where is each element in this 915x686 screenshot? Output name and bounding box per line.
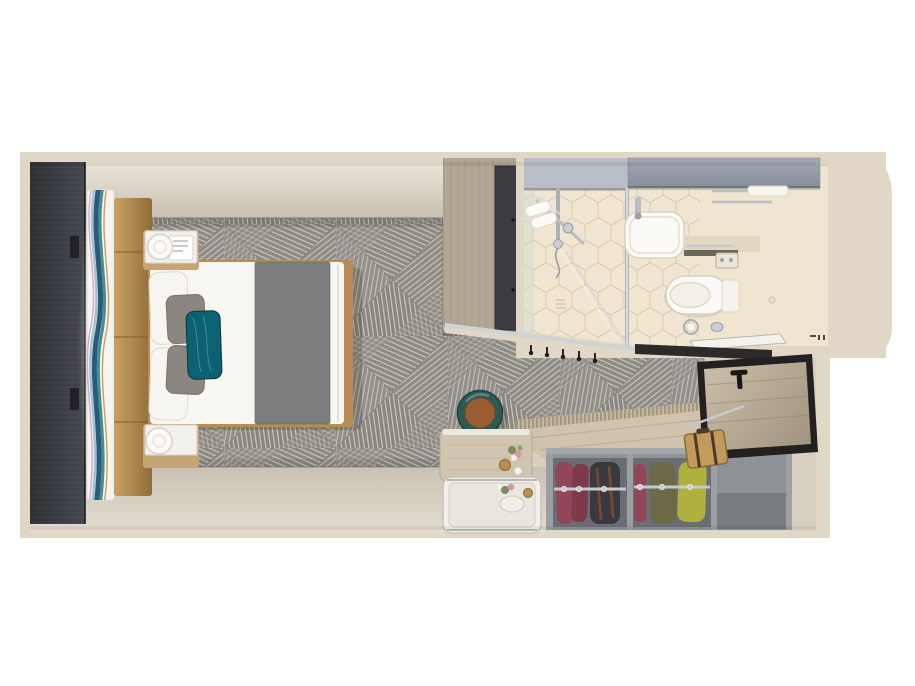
wall-shadow-top — [30, 162, 816, 166]
tall-cabinet — [443, 158, 523, 336]
wall-shadow-bottom — [30, 526, 816, 530]
bathroom — [516, 152, 886, 358]
cabinet-door — [495, 166, 518, 330]
nightstand-top — [143, 230, 199, 270]
panel-handle — [70, 388, 79, 410]
folded-towel — [748, 186, 788, 196]
carpet-shadow-top — [147, 218, 443, 227]
double-bed — [148, 260, 362, 430]
vanity-counter-ledge — [684, 236, 760, 252]
wave-artwork — [87, 185, 114, 505]
wall-outlet — [769, 297, 775, 303]
open-closet — [546, 448, 792, 530]
faucet — [635, 197, 641, 214]
table-lamp — [146, 428, 172, 454]
drain-cap — [711, 323, 723, 332]
dark-jacket — [590, 462, 620, 524]
nightstand-bottom — [143, 424, 199, 468]
hand-shower — [554, 240, 563, 249]
dark-wardrobe-panel — [30, 162, 85, 524]
plate — [500, 496, 524, 512]
shower-mixer — [563, 223, 573, 233]
gold-item — [524, 489, 533, 498]
olive-garment — [649, 462, 677, 525]
maroon-garments — [555, 462, 589, 525]
gray-bed-runner — [255, 262, 330, 424]
panel-handle — [70, 236, 79, 258]
stateroom-floor-plan — [0, 0, 915, 686]
gold-pot — [500, 460, 511, 471]
floor-plan-canvas — [0, 0, 915, 686]
desk — [440, 429, 532, 481]
cup — [514, 467, 522, 475]
maroon-garment — [634, 464, 646, 522]
chartreuse-garment — [677, 462, 707, 523]
toilet-tank — [722, 280, 739, 312]
flush-plate — [716, 253, 738, 268]
empty-compartment-floor — [717, 493, 787, 529]
table-lamp — [148, 235, 173, 260]
serving-tray-table — [443, 477, 541, 533]
shower-bar — [556, 188, 560, 242]
